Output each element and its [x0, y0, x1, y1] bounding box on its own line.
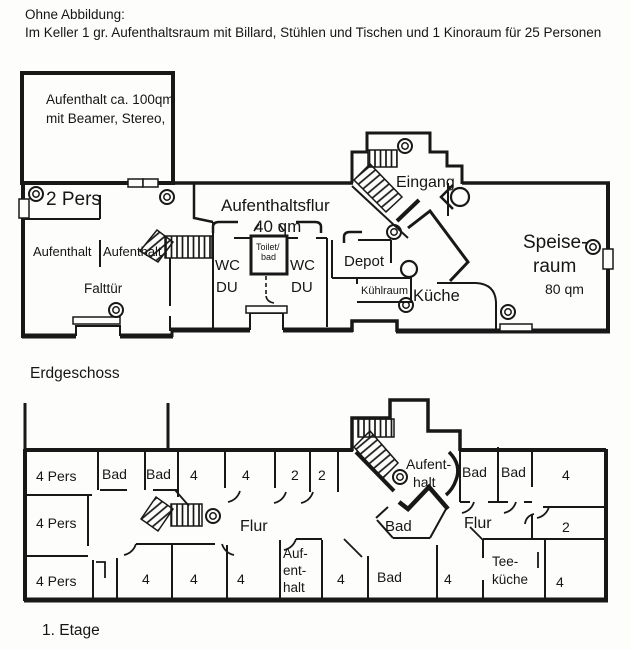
single-circle-symbol [401, 261, 417, 277]
double-circle-symbol [29, 187, 43, 201]
room-label-tea-kitchen-1: Tee- [492, 554, 518, 569]
staircase-tower-first [354, 419, 398, 479]
room-label-toilet-1: Toilet/ [256, 242, 280, 252]
first-floor-plan: 4 Pers Bad Bad 4 4 2 2 Aufent- halt Bad … [24, 400, 608, 639]
room-label-4: 4 [562, 467, 570, 483]
first-floor-caption: 1. Etage [42, 622, 100, 639]
room-label-4pers-mid: 4 Pers [36, 515, 76, 531]
room-label-flur-right: Flur [464, 515, 492, 532]
staircase-entrance [354, 150, 402, 212]
window-marker [19, 199, 29, 218]
room-label-bad: Bad [146, 466, 171, 482]
room-label-entrance: Eingang [396, 174, 455, 191]
room-label-2: 2 [291, 467, 299, 483]
room-label-bad-bottom: Bad [377, 569, 402, 585]
room-label-4pers-top: 4 Pers [36, 468, 76, 484]
room-label-corridor-area: 40 qm [254, 217, 301, 236]
room-label-toilet-2: bad [261, 252, 276, 262]
double-circle-symbol [399, 298, 413, 312]
window-marker [143, 179, 158, 187]
first-floor-outer-walls [24, 400, 608, 601]
double-circle-symbol [160, 190, 174, 204]
room-label-4: 4 [242, 467, 250, 483]
room-label-lounge-top-1: Aufent- [406, 456, 451, 472]
room-label-lounge-right: Aufenthalt [103, 244, 162, 259]
room-label-folding-door: Falttür [84, 281, 123, 296]
room-label-wc-left-2: DU [216, 279, 238, 296]
double-circle-symbol [109, 303, 123, 317]
thick-zigzag-wall [399, 487, 448, 509]
room-label-2-right: 2 [562, 519, 570, 535]
room-label-2pers: 2 Pers [46, 189, 101, 210]
room-label-4: 4 [444, 571, 452, 587]
room-label-4: 4 [142, 571, 150, 587]
room-label-4: 4 [556, 574, 564, 590]
room-label-4: 4 [190, 467, 198, 483]
room-label-wc-right-1: WC [290, 257, 315, 274]
double-circle-symbol [501, 305, 515, 319]
room-label-kitchen: Küche [413, 287, 460, 305]
double-circle-symbol [586, 240, 600, 254]
room-label-bad: Bad [102, 466, 127, 482]
scanned-floorplan-page: Ohne Abbildung: Im Keller 1 gr. Aufentha… [0, 0, 631, 650]
room-label-4: 4 [237, 571, 245, 587]
room-label-flur-left: Flur [240, 518, 268, 535]
room-label-bad-mid: Bad [385, 518, 412, 535]
room-label-wc-left-1: WC [215, 257, 240, 274]
room-label-dining-2: raum [533, 256, 576, 277]
room-label-lounge-bottom-2: ent- [283, 563, 306, 578]
window-marker [603, 249, 613, 269]
room-label-cold-room: Kühlraum [361, 285, 408, 297]
room-label-dining-area: 80 qm [545, 281, 584, 297]
window-marker [128, 179, 143, 187]
double-circle-symbol [206, 509, 220, 523]
room-label-lounge-bottom-3: halt [283, 580, 305, 595]
room-label-4: 4 [190, 571, 198, 587]
ground-floor-plan: Aufenthalt ca. 100qm mit Beamer, Stereo,… [19, 73, 613, 382]
room-label-4: 4 [337, 571, 345, 587]
room-label-2: 2 [318, 467, 326, 483]
double-circle-symbol [398, 139, 412, 153]
room-label-corridor: Aufenthaltsflur [221, 196, 330, 215]
double-circle-symbol [387, 225, 401, 239]
room-label-lounge-top-2: halt [413, 474, 436, 490]
door-threshold [500, 324, 532, 331]
room-label-bad: Bad [501, 464, 526, 480]
room-label-lounge-bottom-1: Auf- [283, 546, 308, 561]
room-label-4pers-bottom: 4 Pers [36, 573, 76, 589]
big-lounge-room [22, 73, 173, 183]
room-label-wc-right-2: DU [291, 279, 313, 296]
room-label-big-lounge-2: mit Beamer, Stereo, [46, 111, 165, 126]
floor-plans-canvas: Aufenthalt ca. 100qm mit Beamer, Stereo,… [0, 0, 631, 650]
door-threshold [246, 306, 287, 313]
room-label-big-lounge-1: Aufenthalt ca. 100qm [46, 92, 174, 107]
room-label-bad: Bad [462, 464, 487, 480]
room-label-depot: Depot [344, 253, 385, 270]
room-label-tea-kitchen-2: küche [492, 572, 528, 587]
staircase-middle-first [141, 497, 202, 531]
room-label-dining-1: Speise- [523, 232, 587, 253]
ground-floor-caption: Erdgeschoss [30, 365, 120, 382]
room-label-lounge-left: Aufenthalt [33, 244, 92, 259]
double-circle-symbol [393, 470, 407, 484]
door-threshold [73, 317, 120, 324]
